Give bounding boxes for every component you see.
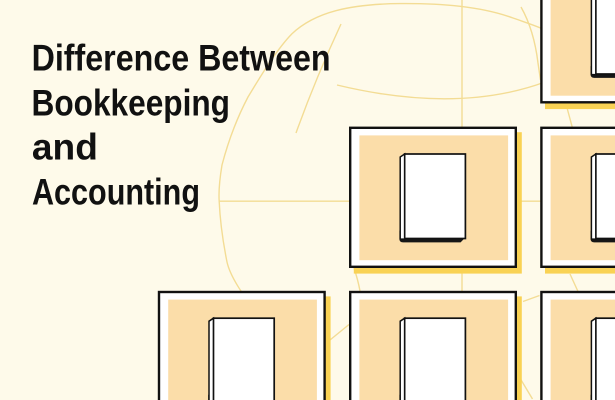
svg-text:Accounting: Accounting	[32, 171, 200, 213]
svg-text:and: and	[32, 126, 98, 168]
svg-text:Bookkeeping: Bookkeeping	[32, 82, 231, 124]
svg-text:Difference Between: Difference Between	[32, 37, 331, 79]
